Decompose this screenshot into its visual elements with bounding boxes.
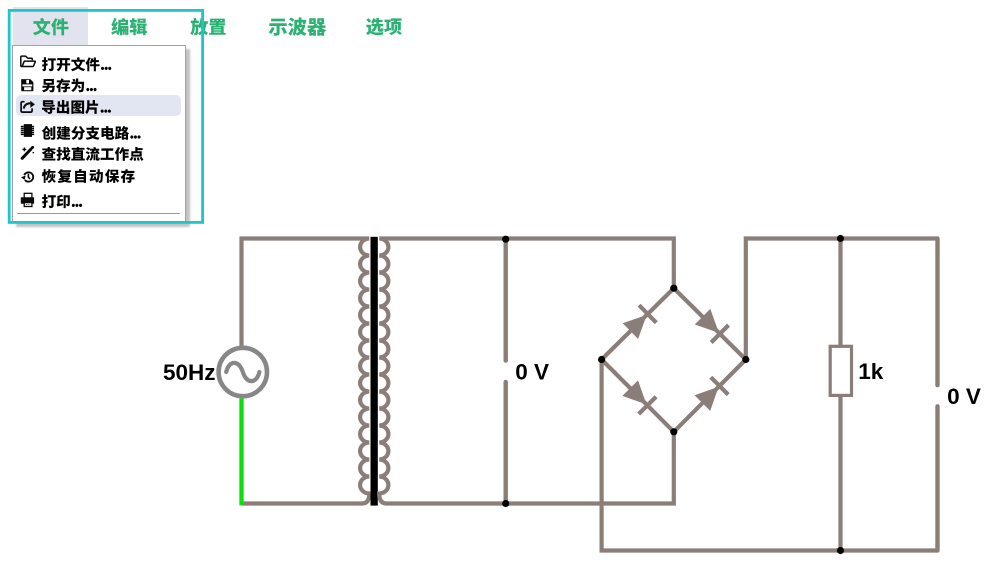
svg-text:50Hz: 50Hz: [163, 360, 216, 385]
svg-text:0 V: 0 V: [947, 384, 981, 409]
svg-text:0 V: 0 V: [515, 360, 549, 385]
svg-text:1k: 1k: [858, 359, 884, 384]
